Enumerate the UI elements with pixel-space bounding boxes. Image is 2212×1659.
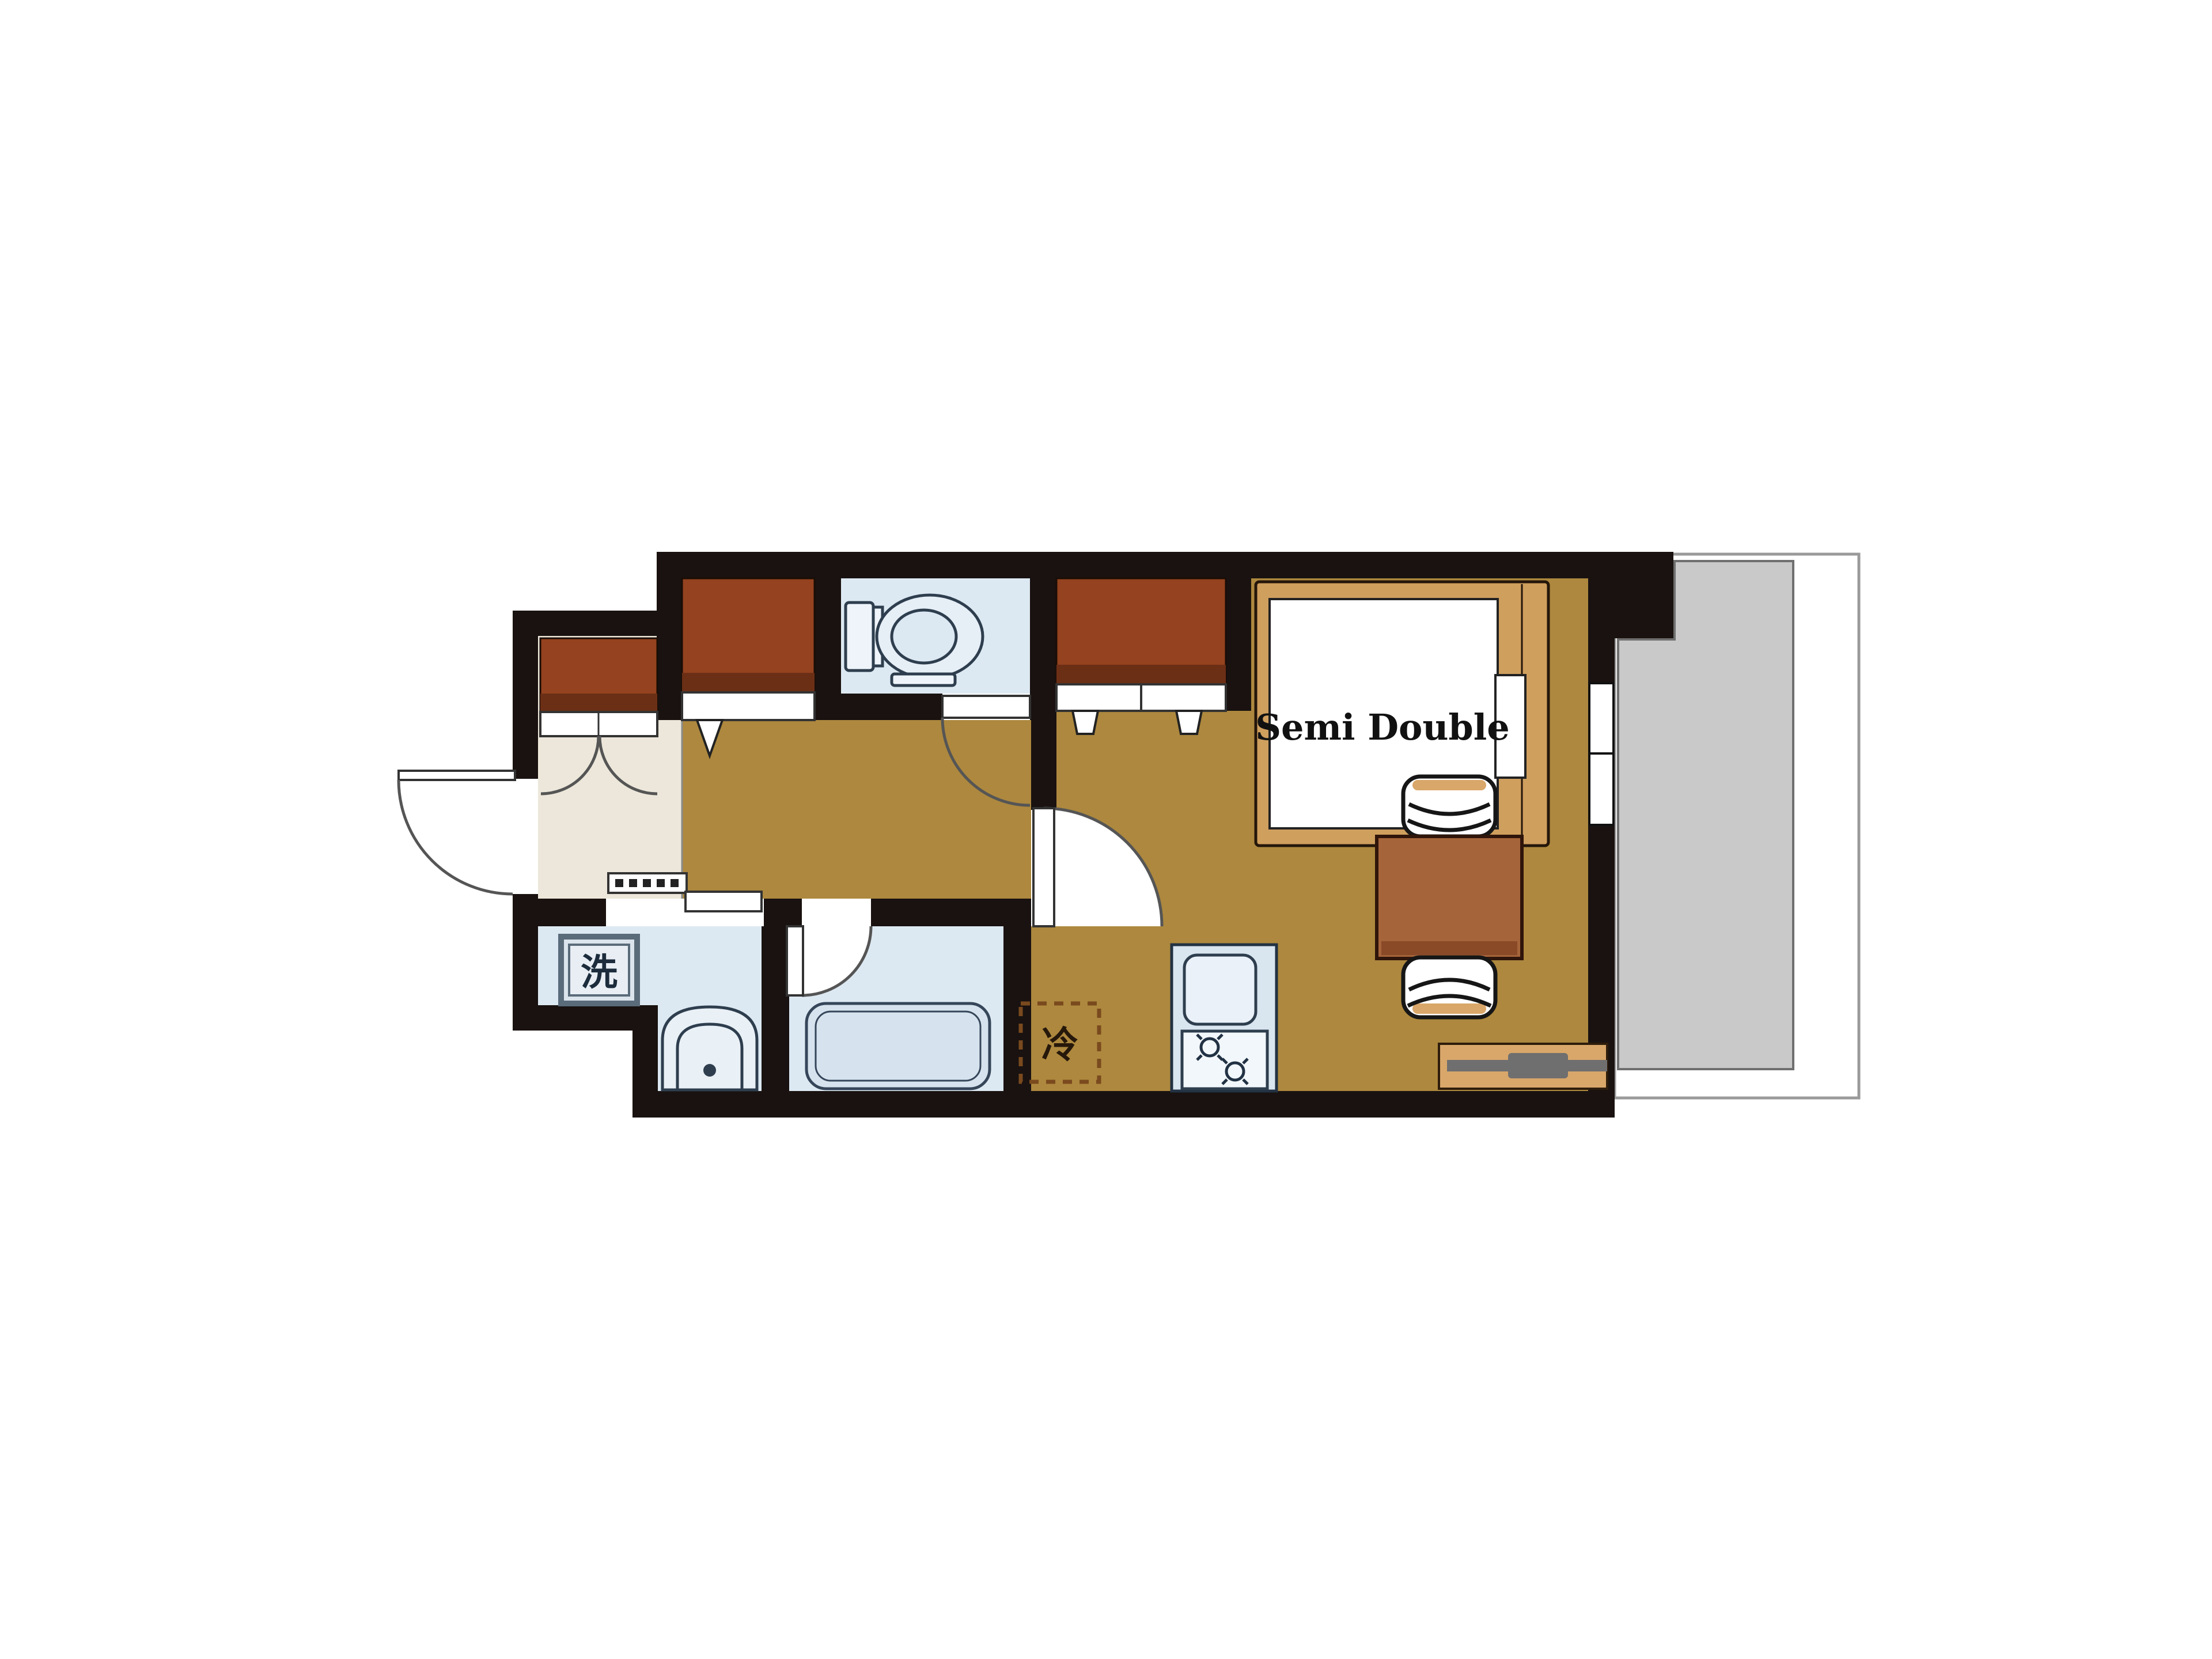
hall-closet-door [682, 692, 815, 720]
bathtub [806, 1003, 990, 1089]
toilet-bowl-inner [892, 610, 956, 663]
bathroom-door-opening [802, 899, 871, 926]
wall-hall-bottom [513, 899, 1056, 926]
bedroom-closet-knob-right [1176, 711, 1202, 734]
table-shade [1381, 941, 1517, 955]
window-panel-top [1589, 683, 1613, 753]
wall-hall-closet-right [815, 578, 841, 720]
bedroom-closet-knob-left [1073, 711, 1098, 734]
chair-bottom [1403, 957, 1495, 1017]
main-door-leaf [1033, 808, 1054, 926]
wall-hall-main-divider [1031, 720, 1056, 810]
entrance-door-opening [513, 779, 538, 894]
entrance-door-leaf [399, 771, 515, 780]
wall-top-entrance [513, 611, 682, 636]
fridge-label: 冷 [1041, 1024, 1078, 1067]
table [1377, 836, 1522, 959]
washbasin-drain [703, 1064, 716, 1077]
kitchen [1172, 945, 1277, 1091]
balcony-sliding-window [1589, 683, 1613, 825]
toilet-base [892, 674, 955, 685]
wall-bedroom-closet-right [1226, 578, 1251, 711]
bed-size-label: Semi Double [1255, 706, 1510, 748]
wall-top-main [657, 552, 1673, 578]
bedroom-closet [1056, 578, 1226, 734]
wall-notch-vertical [632, 1005, 658, 1118]
hall-closet-shade [682, 673, 815, 692]
floor-plan: Semi Double [0, 0, 2212, 1659]
chair-bottom-cushion [1412, 1003, 1486, 1014]
entrance-closet-shade [540, 694, 657, 712]
wall-toilet-bottom [840, 694, 942, 720]
wall-bottom-main [632, 1091, 1615, 1118]
hall-floor [682, 720, 1031, 899]
chair-top [1403, 777, 1495, 836]
bedroom-closet-shade [1056, 665, 1226, 684]
entrance-door [399, 771, 515, 894]
washer-label: 洗 [581, 952, 618, 994]
wall-bathroom-right [1003, 899, 1031, 1091]
tv-board [1439, 1044, 1607, 1089]
entrance-door-swing-arc [399, 780, 513, 894]
wall-hall-closet-left [657, 578, 682, 720]
toilet-door-leaf [942, 696, 1030, 718]
bathroom-door-leaf [787, 926, 803, 995]
tv-center-block [1508, 1053, 1568, 1078]
sliding-door-panel-plain [685, 892, 762, 911]
chair-top-cushion [1412, 780, 1486, 790]
wall-washroom-bath-divider [762, 926, 789, 1091]
toilet-tank [846, 603, 873, 671]
kitchen-sink [1184, 955, 1256, 1024]
wall-right [1588, 552, 1615, 1118]
wall-toilet-right [1030, 578, 1056, 720]
window-panel-bottom [1589, 753, 1613, 825]
